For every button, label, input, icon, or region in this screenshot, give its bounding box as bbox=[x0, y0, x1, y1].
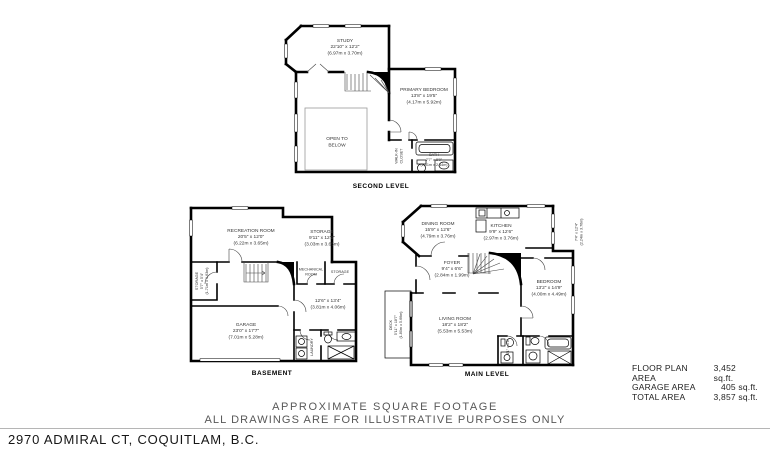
room-label-deck-right: 7'4" x 12'4" (2.24m x 3.76m) bbox=[575, 218, 585, 245]
room-label-bedroom: BEDROOM 13'2" x 14'9" (4.00m x 4.49m) bbox=[532, 280, 567, 299]
room-label-garage: GARAGE 23'0" x 17'7" (7.01m x 5.28m) bbox=[229, 323, 264, 342]
main-level-plan: DINING ROOM 15'9" x 12'6" (4.79m x 3.76m… bbox=[383, 196, 588, 376]
stairs-icon bbox=[468, 253, 504, 274]
room-label-mechanical-room: MECHANICAL ROOM bbox=[299, 268, 323, 278]
property-address: 2970 ADMIRAL CT, COQUITLAM, B.C. bbox=[8, 432, 259, 447]
laundry-fixtures bbox=[296, 336, 307, 359]
footer-divider bbox=[0, 428, 770, 429]
room-label-bath: BATH 7'7" x 8'0" (2.31m x 2.44m) bbox=[420, 154, 447, 169]
room-label-deck-left: DECK 5'11" x 18'7" (1.80m x 5.66m) bbox=[390, 311, 405, 338]
room-label-laundry: LAUNDRY bbox=[311, 338, 316, 356]
stair-corner-wall bbox=[278, 262, 294, 284]
room-label-study: STUDY 22'10" x 12'2" (6.97m x 3.70m) bbox=[328, 39, 363, 58]
room-label-storage-top: STORAGE 9'11" x 12'0" (3.03m x 3.65m) bbox=[305, 230, 340, 249]
main-level-caption: MAIN LEVEL bbox=[465, 371, 509, 378]
bath-fixtures bbox=[526, 337, 571, 364]
basement-plan: RECREATION ROOM 20'5" x 12'0" (6.22m x 3… bbox=[182, 200, 360, 368]
room-label-storage-right: STORAGE bbox=[331, 271, 349, 276]
second-level-plan: STUDY 22'10" x 12'2" (6.97m x 3.70m) PRI… bbox=[283, 20, 463, 180]
area-row-floor-plan: FLOOR PLAN AREA 3,452 sq.ft. bbox=[632, 364, 758, 383]
room-label-primary-bedroom: PRIMARY BEDROOM 13'8" x 19'5" (4.17m x 5… bbox=[400, 88, 448, 107]
room-label-foyer: FOYER 9'4" x 6'6" (2.84m x 1.99m) bbox=[435, 261, 470, 280]
basement-caption: BASEMENT bbox=[252, 370, 292, 377]
room-label-dining-room: DINING ROOM 15'9" x 12'6" (4.79m x 3.76m… bbox=[421, 222, 456, 241]
area-value: 3,452 sq.ft. bbox=[714, 364, 758, 383]
room-label-recreation-room: RECREATION ROOM 20'5" x 12'0" (6.22m x 3… bbox=[227, 229, 274, 248]
stairs-icon bbox=[244, 262, 268, 282]
second-level-caption: SECOND LEVEL bbox=[353, 183, 410, 190]
room-label-storage-left: STORAGE 5'7" x 5'4" (1.71m x 1.63m) bbox=[196, 267, 211, 294]
room-label-living-room: LIVING ROOM 18'2" x 18'2" (5.53m x 5.53m… bbox=[438, 317, 473, 336]
room-label-kitchen: KITCHEN 9'9" x 12'6" (2.97m x 3.76m) bbox=[484, 224, 519, 243]
area-summary: FLOOR PLAN AREA 3,452 sq.ft. GARAGE AREA… bbox=[632, 364, 758, 402]
approximate-square-footage-note: APPROXIMATE SQUARE FOOTAGE bbox=[0, 401, 770, 413]
floorplan-page: STUDY 22'10" x 12'2" (6.97m x 3.70m) PRI… bbox=[0, 0, 770, 450]
room-label-open-to-below: OPEN TO BELOW bbox=[326, 137, 347, 149]
bath-fixtures bbox=[324, 332, 356, 359]
area-label: FLOOR PLAN AREA bbox=[632, 364, 714, 383]
room-label-wc: 4'1" x 5'8" bbox=[507, 339, 512, 355]
room-label-walk-in-closet: WALK-IN CLOSET bbox=[395, 148, 405, 163]
illustrative-purposes-note: ALL DRAWINGS ARE FOR ILLUSTRATIVE PURPOS… bbox=[0, 414, 770, 426]
room-label-flex-room: 12'6" x 13'4" (3.81m x 4.06m) bbox=[311, 299, 346, 311]
